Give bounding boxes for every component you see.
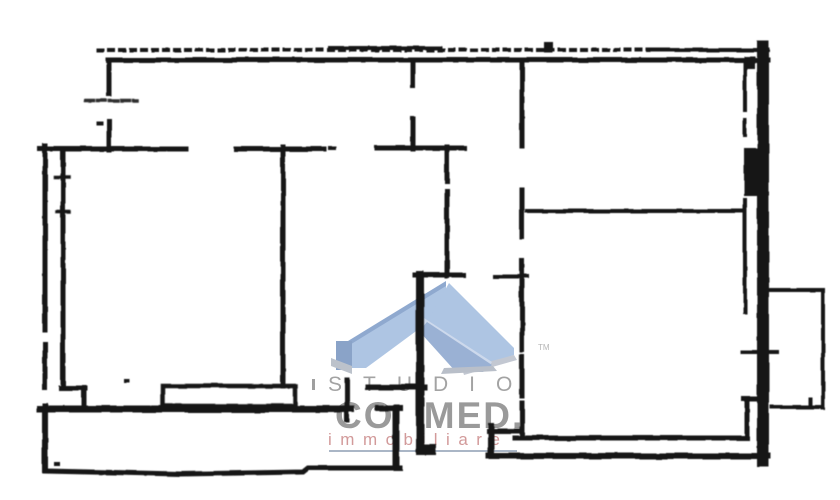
svg-text:STUDIO: STUDIO [328, 373, 533, 396]
svg-text:TM: TM [538, 343, 550, 352]
